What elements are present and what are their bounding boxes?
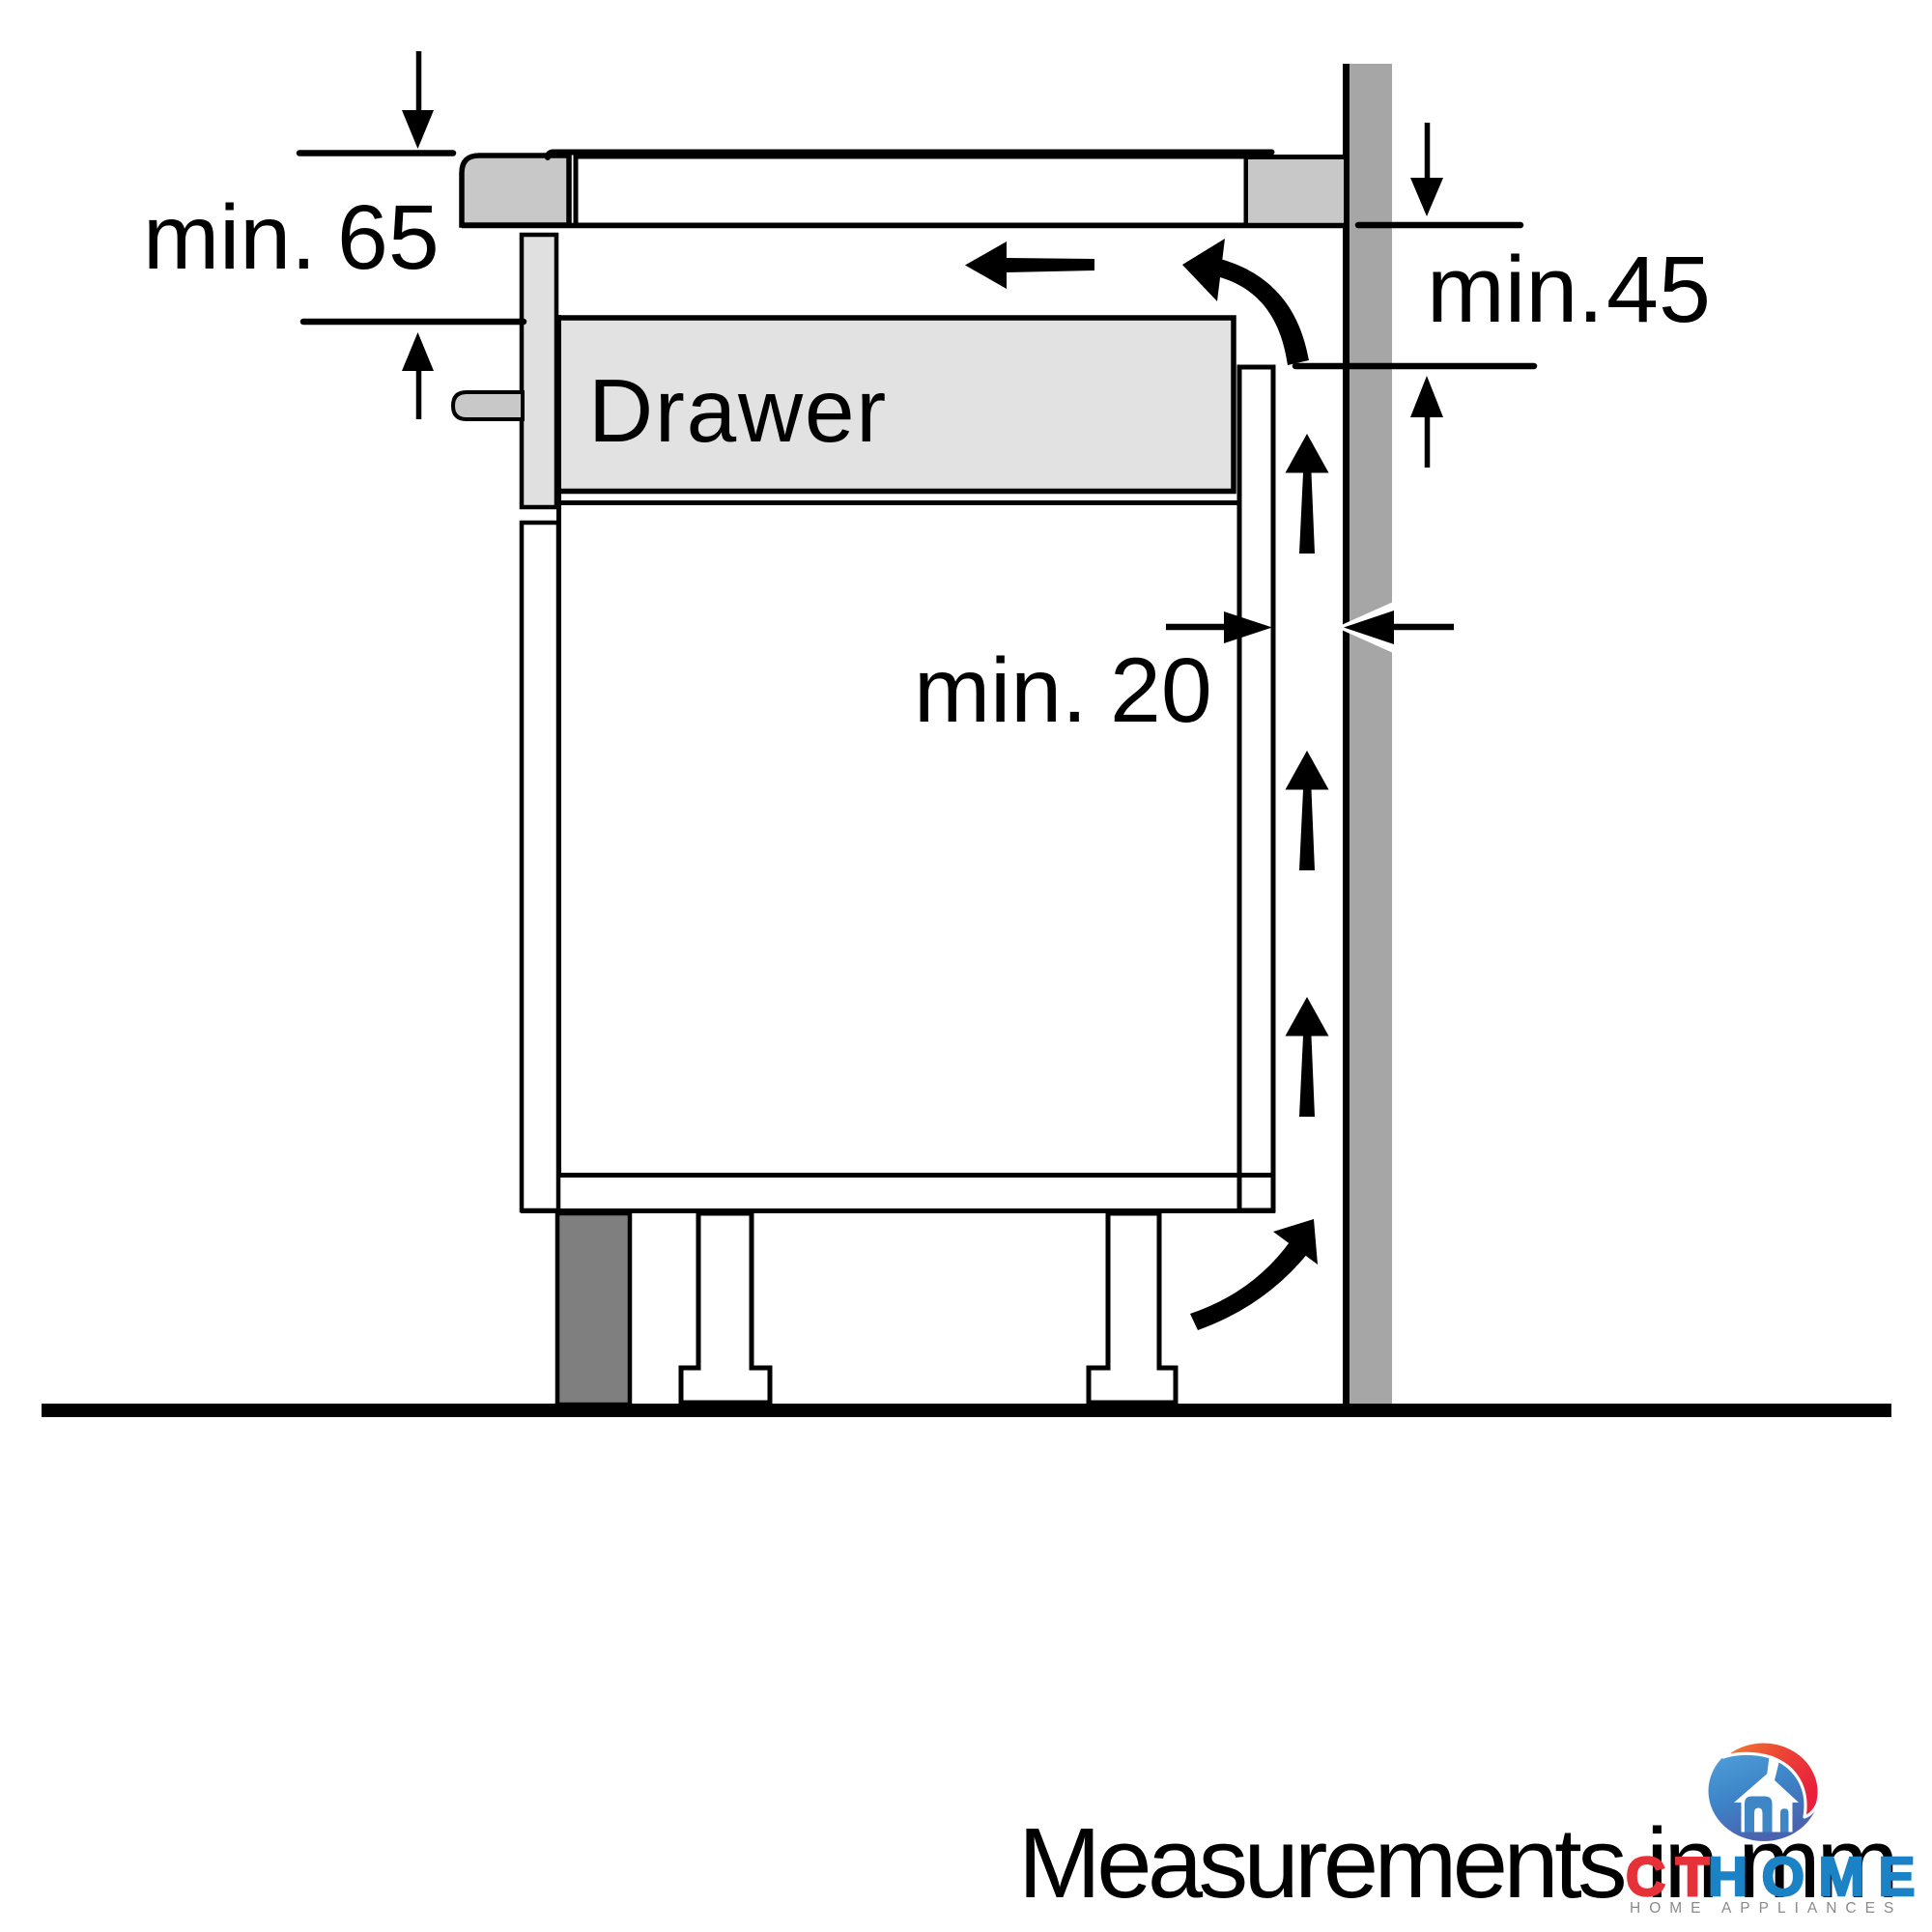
svg-text:Drawer: Drawer xyxy=(588,360,888,461)
svg-text:min.65: min.65 xyxy=(143,186,440,289)
svg-text:CT: CT xyxy=(1626,1846,1719,1908)
svg-text:HOME APPLIANCES: HOME APPLIANCES xyxy=(1630,1900,1902,1917)
svg-text:min.20: min.20 xyxy=(914,639,1212,742)
svg-text:min.45: min.45 xyxy=(1427,237,1711,342)
svg-text:HOME: HOME xyxy=(1708,1846,1929,1908)
